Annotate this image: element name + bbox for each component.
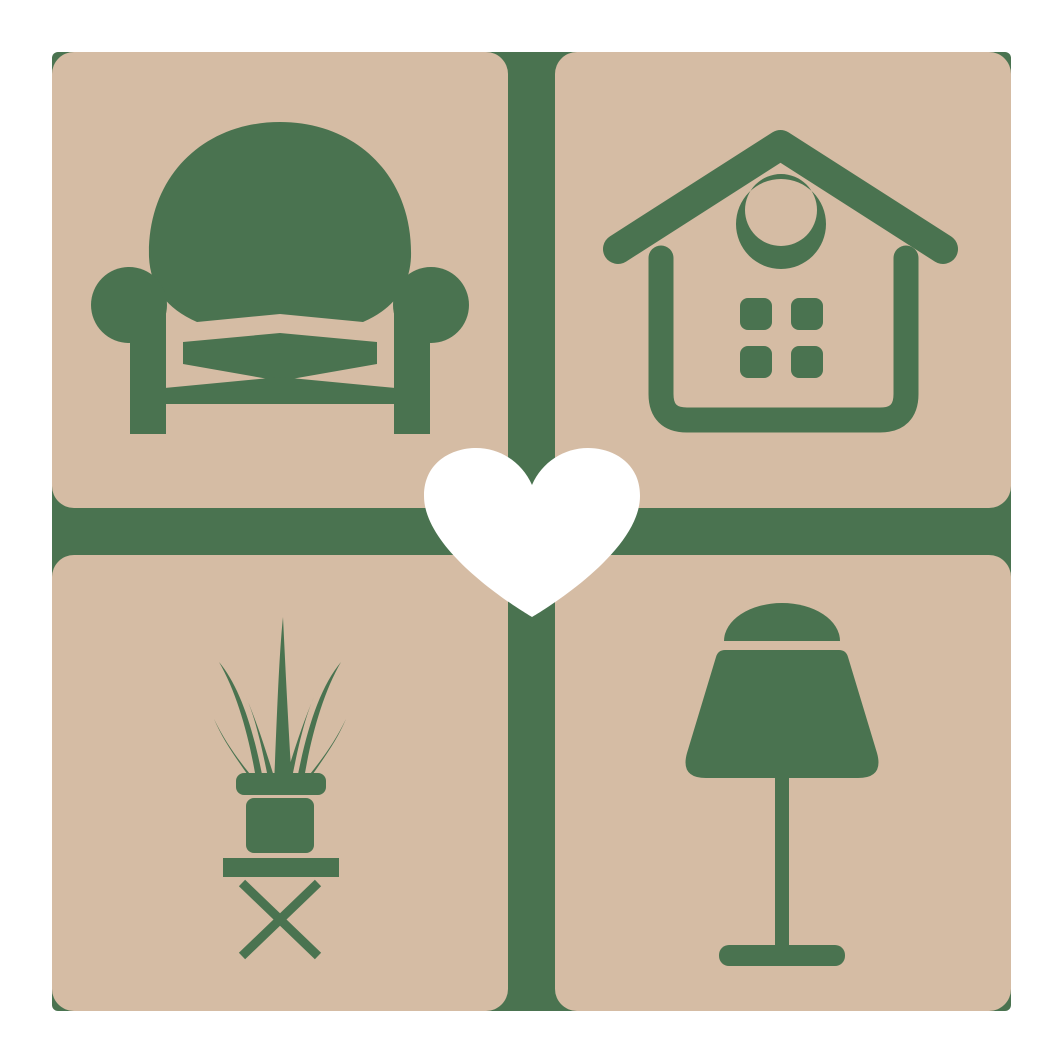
tile-lamp bbox=[555, 555, 1011, 1011]
tile-plant bbox=[52, 555, 508, 1011]
armchair-back bbox=[149, 122, 411, 322]
house-crescent-ornament bbox=[736, 174, 826, 269]
lamp-stem bbox=[775, 775, 789, 950]
armchair-front-rail bbox=[154, 377, 406, 404]
armchair-right-leg bbox=[394, 302, 430, 434]
potted-plant-icon bbox=[52, 555, 508, 1011]
tile-house bbox=[555, 52, 1011, 508]
furniture-logo bbox=[0, 0, 1063, 1063]
stool-cross-legs bbox=[242, 883, 318, 956]
armchair-seat-back-slat bbox=[183, 333, 377, 381]
table-lamp-icon bbox=[555, 555, 1011, 1011]
plant-leaves bbox=[214, 617, 346, 789]
heart-icon bbox=[424, 448, 640, 618]
plant-pot-body bbox=[246, 798, 314, 853]
lamp-cap bbox=[724, 603, 840, 641]
lamp-base bbox=[719, 945, 845, 966]
lamp-shade bbox=[686, 650, 879, 778]
house-icon bbox=[555, 52, 1011, 508]
armchair-left-leg bbox=[130, 302, 166, 434]
house-walls bbox=[661, 258, 906, 420]
house-window bbox=[740, 346, 772, 378]
house-window bbox=[791, 346, 823, 378]
tile-armchair bbox=[52, 52, 508, 508]
house-window bbox=[740, 298, 772, 330]
house-roof bbox=[618, 145, 943, 249]
armchair-icon bbox=[52, 52, 508, 508]
plant-pot-rim bbox=[236, 773, 326, 795]
house-window bbox=[791, 298, 823, 330]
stool-top bbox=[223, 858, 339, 877]
